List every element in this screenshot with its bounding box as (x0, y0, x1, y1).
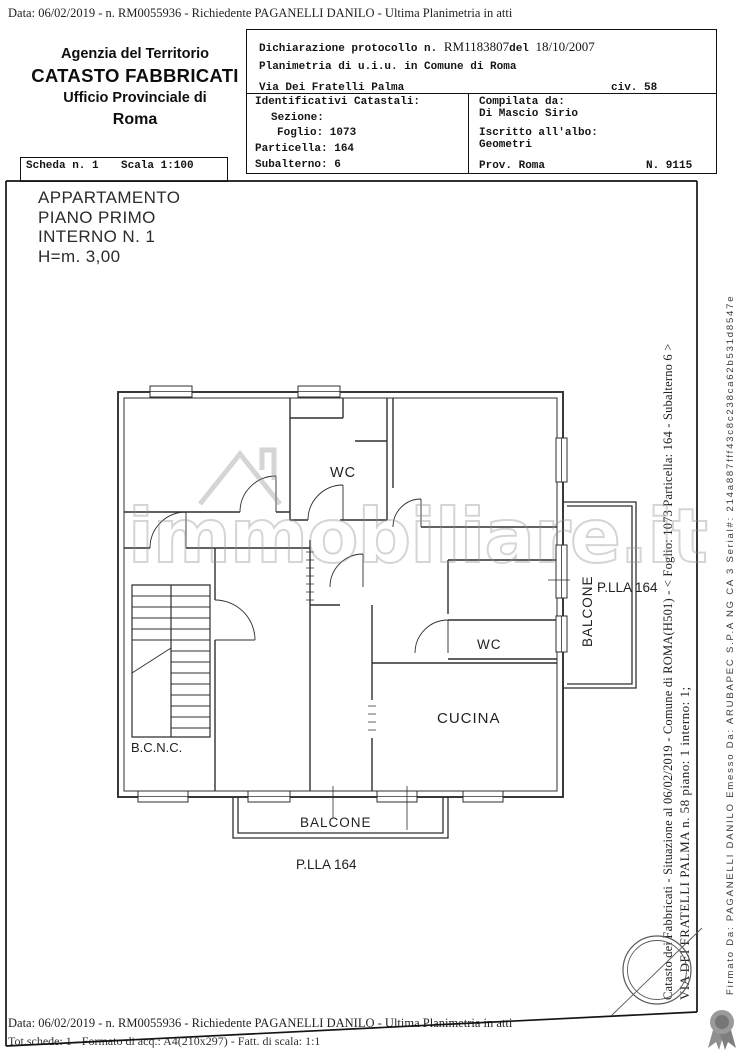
window-icon (138, 791, 188, 802)
room-label-wc-top: WC (330, 465, 356, 481)
rosette-ribbon-icon (708, 1010, 736, 1050)
window-icon (463, 791, 503, 802)
room-label-balcone-bottom: BALCONE (300, 815, 372, 830)
window-icon (248, 791, 290, 802)
window-icon (556, 545, 567, 598)
window-icon (150, 386, 192, 397)
parcel-label-right: P.LLA 164 (597, 580, 658, 595)
window-symbols (138, 386, 567, 802)
room-label-balcone-right: BALCONE (580, 575, 595, 647)
room-label-bcnc: B.C.N.C. (131, 740, 182, 755)
parcel-label-bottom: P.LLA 164 (296, 857, 357, 872)
partition-hatches (306, 552, 570, 830)
circle-stamp-icon (611, 928, 702, 1016)
staircase (132, 585, 210, 737)
window-icon (556, 438, 567, 482)
door-swing-arcs (150, 476, 448, 653)
window-icon (377, 791, 417, 802)
room-label-wc-mid: WC (477, 637, 502, 652)
window-icon (556, 616, 567, 652)
room-label-cucina: CUCINA (437, 710, 501, 727)
window-icon (298, 386, 340, 397)
floor-plan-drawing: WC WC CUCINA B.C.N.C. BALCONE BALCONE P.… (0, 0, 744, 1050)
